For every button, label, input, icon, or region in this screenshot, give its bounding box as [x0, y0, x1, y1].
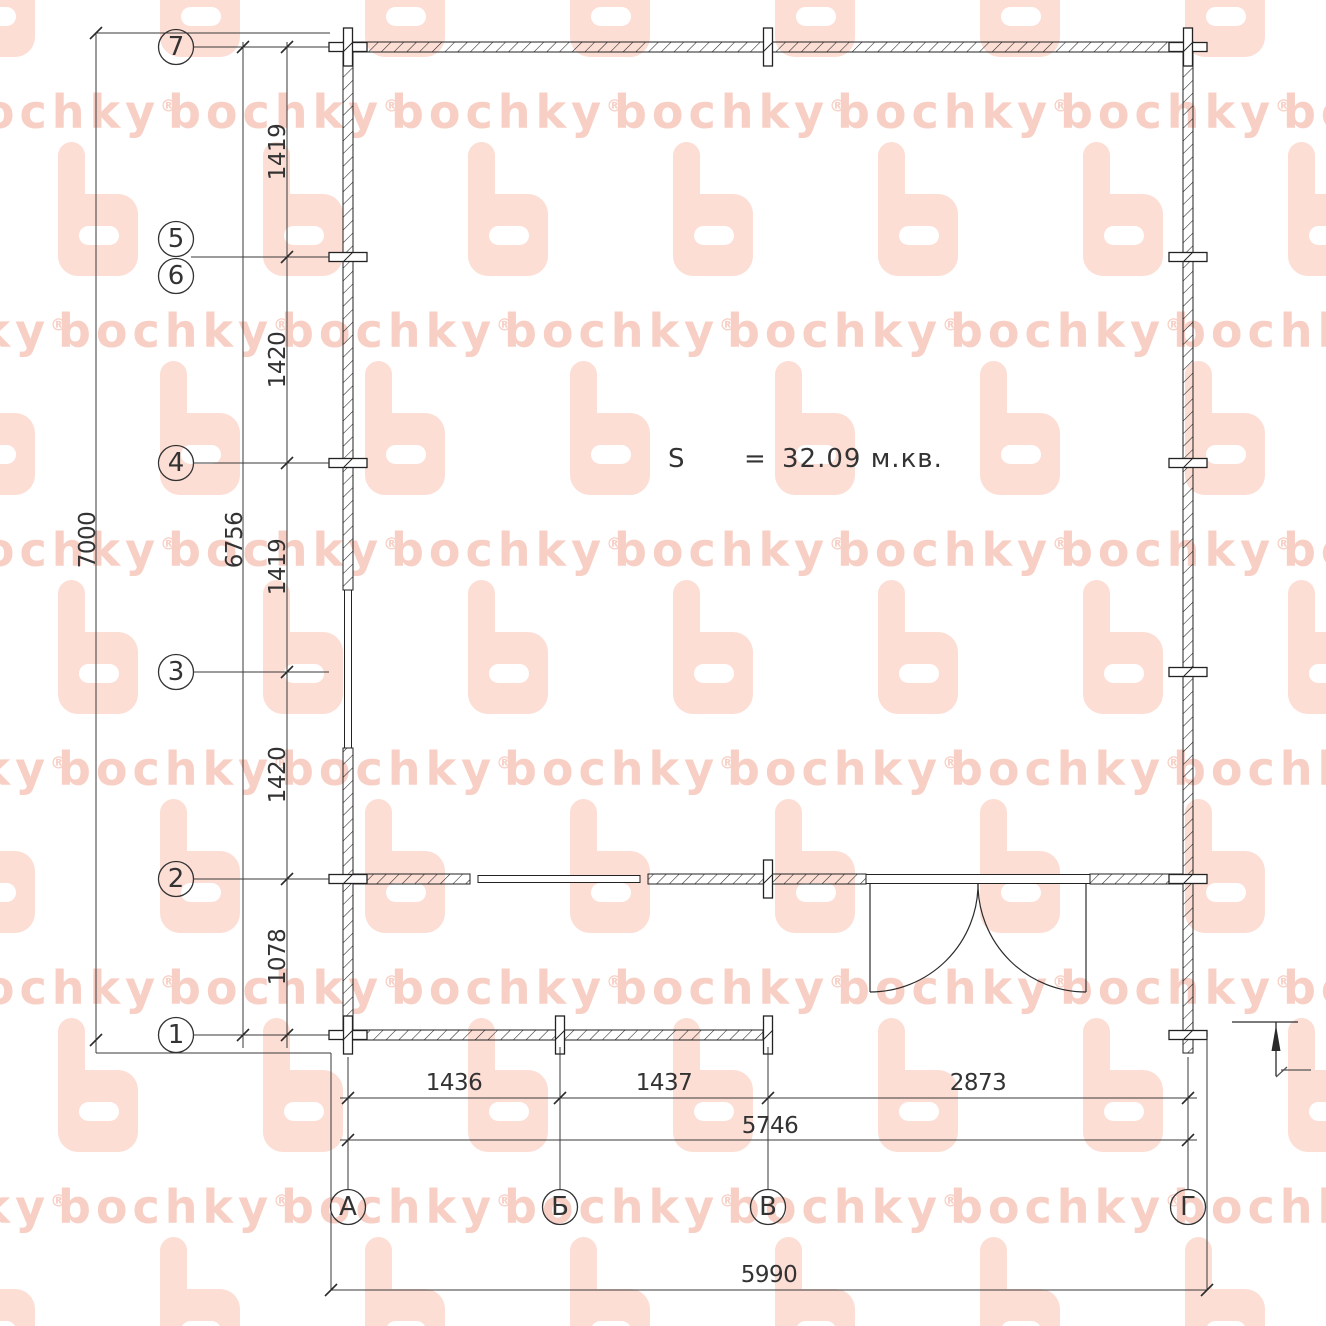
- axis-bubble-G: Г: [1171, 1190, 1206, 1225]
- walls: [343, 42, 1193, 1053]
- floor-plan-page: bochky®bochky®bochky®bochky®bochky®bochk…: [0, 0, 1326, 1326]
- axis-bubble-5: 5: [159, 222, 194, 257]
- axis-bubble-3: 3: [159, 655, 194, 690]
- door-lintel: [866, 875, 1090, 884]
- axis-bubble-2: 2: [159, 862, 194, 897]
- axis-bubble-A: А: [331, 1190, 366, 1225]
- dim-text-1437: 1437: [636, 1070, 693, 1096]
- axis-bubble-6: 6: [159, 259, 194, 294]
- dim-text-5746: 5746: [742, 1113, 799, 1139]
- axis-bubble-label: Г: [1180, 1192, 1196, 1222]
- area-symbol: S: [668, 444, 686, 474]
- floor-plan-drawing: 7000 6756 1419 1420 1419 1420 1078 1436 …: [0, 0, 1326, 1326]
- door-swing-arc-left: [870, 884, 978, 992]
- axis-bubble-B: Б: [543, 1190, 578, 1225]
- partition-window: [478, 876, 640, 883]
- area-equals: =: [744, 444, 767, 474]
- door-swing-arc-right: [978, 884, 1086, 992]
- axis-bubble-1: 1: [159, 1018, 194, 1053]
- arrowhead: [1272, 1025, 1281, 1051]
- dim-text-2873: 2873: [950, 1070, 1007, 1096]
- right-wall: [1183, 42, 1193, 1053]
- area-label: S = 32.09 м.кв.: [668, 444, 943, 474]
- axis-bubble-label: Б: [551, 1192, 569, 1222]
- left-wall-upper: [343, 42, 353, 590]
- entrance-arrow: [1232, 1022, 1311, 1077]
- axis-bubble-label: 5: [168, 224, 185, 254]
- axis-bubble-label: А: [339, 1192, 357, 1222]
- axis-bubble-V: В: [751, 1190, 786, 1225]
- area-value: 32.09 м.кв.: [782, 444, 943, 474]
- left-wall-lower: [343, 748, 353, 1040]
- dimension-ticks: [90, 27, 1213, 1296]
- dimension-texts: 7000 6756 1419 1420 1419 1420 1078 1436 …: [75, 124, 1006, 1288]
- left-wall-window: [345, 590, 352, 748]
- dim-text-6756: 6756: [222, 512, 248, 569]
- axis-bubble-label: 6: [168, 261, 185, 291]
- axis-bubble-label: 7: [168, 32, 185, 62]
- dim-text-7000: 7000: [75, 512, 101, 569]
- axis-bubble-label: 3: [168, 657, 185, 687]
- axis-bubble-4: 4: [159, 446, 194, 481]
- double-door: [870, 884, 1086, 992]
- axis-bubble-7: 7: [159, 30, 194, 65]
- axis-bubbles: 7 5 6 4 3 2 1: [159, 30, 1206, 1225]
- dim-text-1436: 1436: [426, 1070, 483, 1096]
- dim-text-1420b: 1420: [265, 747, 291, 804]
- dimension-lines: [96, 33, 1207, 1290]
- partition-wall-middle: [648, 874, 866, 884]
- openings: [345, 590, 1091, 884]
- axis-bubble-label: 4: [168, 448, 185, 478]
- dim-text-1078: 1078: [265, 929, 291, 986]
- dim-text-1420a: 1420: [265, 332, 291, 389]
- dim-text-1419b: 1419: [265, 539, 291, 596]
- porch-front-wall: [343, 1030, 763, 1040]
- axis-bubble-label: В: [759, 1192, 777, 1222]
- axis-bubble-label: 2: [168, 864, 185, 894]
- partition-wall-left: [353, 874, 470, 884]
- log-crossings: [329, 28, 1207, 1054]
- axis-bubble-label: 1: [168, 1020, 185, 1050]
- dim-text-1419a: 1419: [265, 124, 291, 181]
- dim-text-5990: 5990: [741, 1262, 798, 1288]
